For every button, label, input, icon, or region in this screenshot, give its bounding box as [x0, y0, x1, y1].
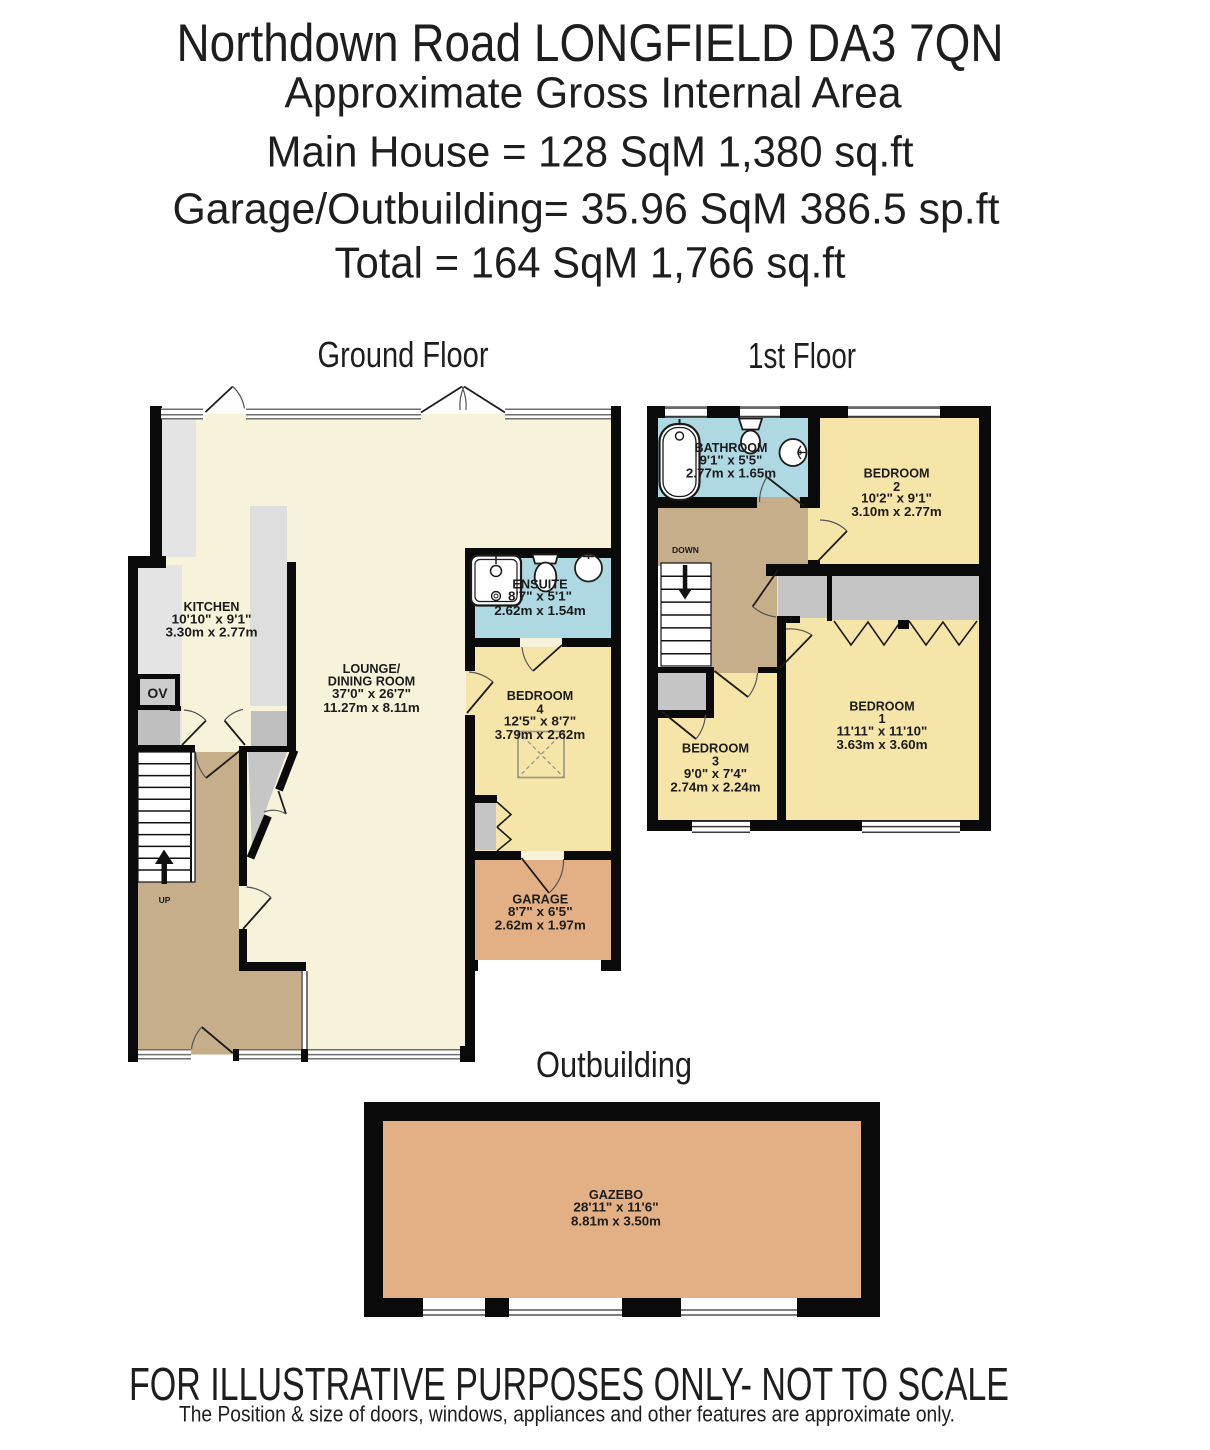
- svg-text:BEDROOM: BEDROOM: [864, 466, 930, 480]
- svg-text:2.62m x 1.54m: 2.62m x 1.54m: [494, 604, 585, 618]
- svg-text:8.81m x 3.50m: 8.81m x 3.50m: [571, 1214, 661, 1228]
- svg-text:9'0" x 7'4": 9'0" x 7'4": [684, 767, 747, 781]
- svg-text:Ground Floor: Ground Floor: [318, 334, 489, 375]
- svg-text:2.62m x 1.97m: 2.62m x 1.97m: [495, 918, 586, 932]
- svg-text:DOWN: DOWN: [672, 545, 699, 555]
- svg-text:3.79m x 2.62m: 3.79m x 2.62m: [495, 728, 585, 742]
- svg-text:11'11" x 11'10": 11'11" x 11'10": [837, 725, 928, 739]
- svg-text:8'7" x 5'1": 8'7" x 5'1": [508, 590, 572, 604]
- svg-text:3.10m x 2.77m: 3.10m x 2.77m: [851, 505, 941, 519]
- svg-text:10'10" x 9'1": 10'10" x 9'1": [172, 612, 252, 626]
- svg-text:OV: OV: [147, 685, 168, 701]
- svg-text:12'5" x 8'7": 12'5" x 8'7": [504, 715, 577, 729]
- svg-text:37'0" x 26'7": 37'0" x 26'7": [332, 687, 411, 701]
- svg-text:3.30m x 2.77m: 3.30m x 2.77m: [166, 626, 258, 640]
- svg-text:Total = 164 SqM 1,766 sq.ft: Total = 164 SqM 1,766 sq.ft: [335, 239, 846, 288]
- svg-text:Outbuilding: Outbuilding: [536, 1044, 692, 1085]
- svg-text:11.27m x 8.11m: 11.27m x 8.11m: [323, 701, 419, 715]
- svg-text:UP: UP: [159, 895, 171, 905]
- svg-text:28'11" x 11'6": 28'11" x 11'6": [573, 1200, 658, 1214]
- svg-text:9'1" x 5'5": 9'1" x 5'5": [700, 453, 763, 467]
- svg-text:3.63m x 3.60m: 3.63m x 3.60m: [836, 738, 927, 752]
- svg-text:BEDROOM: BEDROOM: [507, 689, 573, 703]
- svg-text:2.77m x 1.65m: 2.77m x 1.65m: [686, 467, 776, 481]
- svg-text:8'7" x 6'5": 8'7" x 6'5": [508, 905, 573, 919]
- svg-text:Main House = 128 SqM 1,380 sq: Main House = 128 SqM 1,380 sq.ft: [267, 128, 914, 177]
- svg-text:1st Floor: 1st Floor: [748, 335, 856, 376]
- svg-text:Northdown Road LONGFIELD DA3 7: Northdown Road LONGFIELD DA3 7QN: [177, 14, 1004, 73]
- svg-text:Approximate Gross Internal Are: Approximate Gross Internal Area: [285, 69, 903, 118]
- svg-text:10'2" x 9'1": 10'2" x 9'1": [861, 491, 932, 505]
- svg-text:2.74m x 2.24m: 2.74m x 2.24m: [670, 781, 760, 795]
- svg-text:Garage/Outbuilding= 35.96 SqM: Garage/Outbuilding= 35.96 SqM 386.5 sp.f…: [173, 185, 1000, 234]
- svg-text:The Position & size of doors,: The Position & size of doors, windows, a…: [179, 1402, 955, 1427]
